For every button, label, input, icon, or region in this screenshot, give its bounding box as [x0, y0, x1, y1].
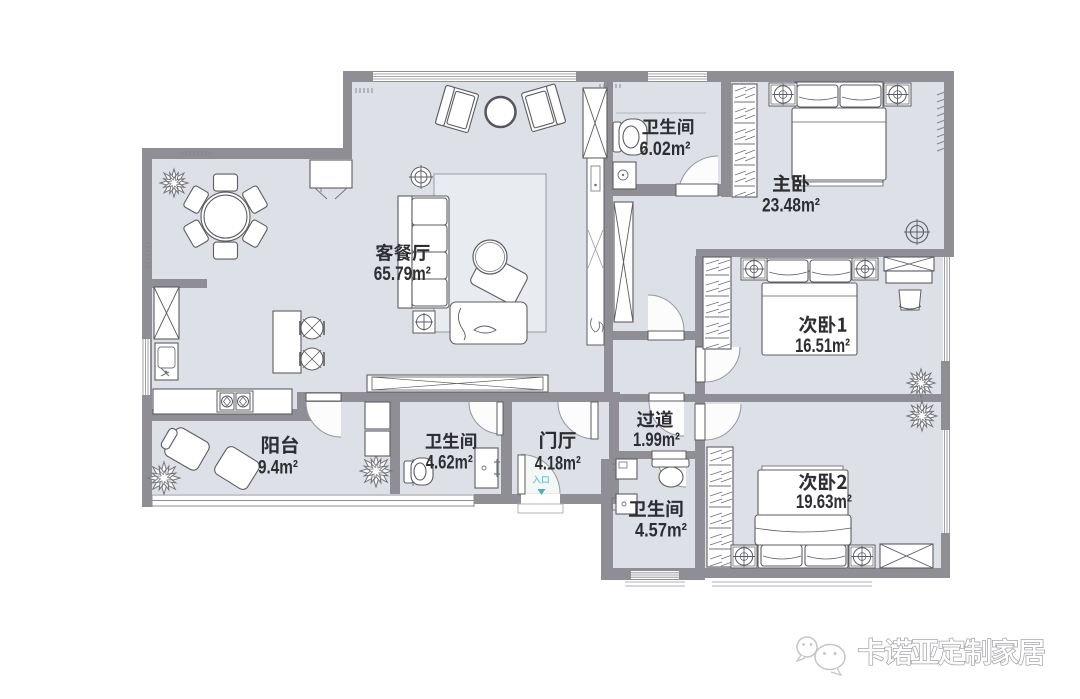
svg-text:16.51m²: 16.51m² [795, 336, 850, 357]
svg-text:4.62m²: 4.62m² [426, 452, 473, 473]
svg-text:65.79m²: 65.79m² [374, 264, 431, 285]
svg-text:1.99m²: 1.99m² [633, 430, 680, 451]
svg-text:23.48m²: 23.48m² [762, 195, 820, 216]
svg-text:6.02m²: 6.02m² [640, 139, 691, 160]
svg-text:9.4m²: 9.4m² [258, 457, 298, 478]
svg-text:19.63m²: 19.63m² [796, 492, 852, 513]
svg-text:4.57m²: 4.57m² [635, 520, 687, 541]
svg-text:4.18m²: 4.18m² [535, 454, 581, 475]
